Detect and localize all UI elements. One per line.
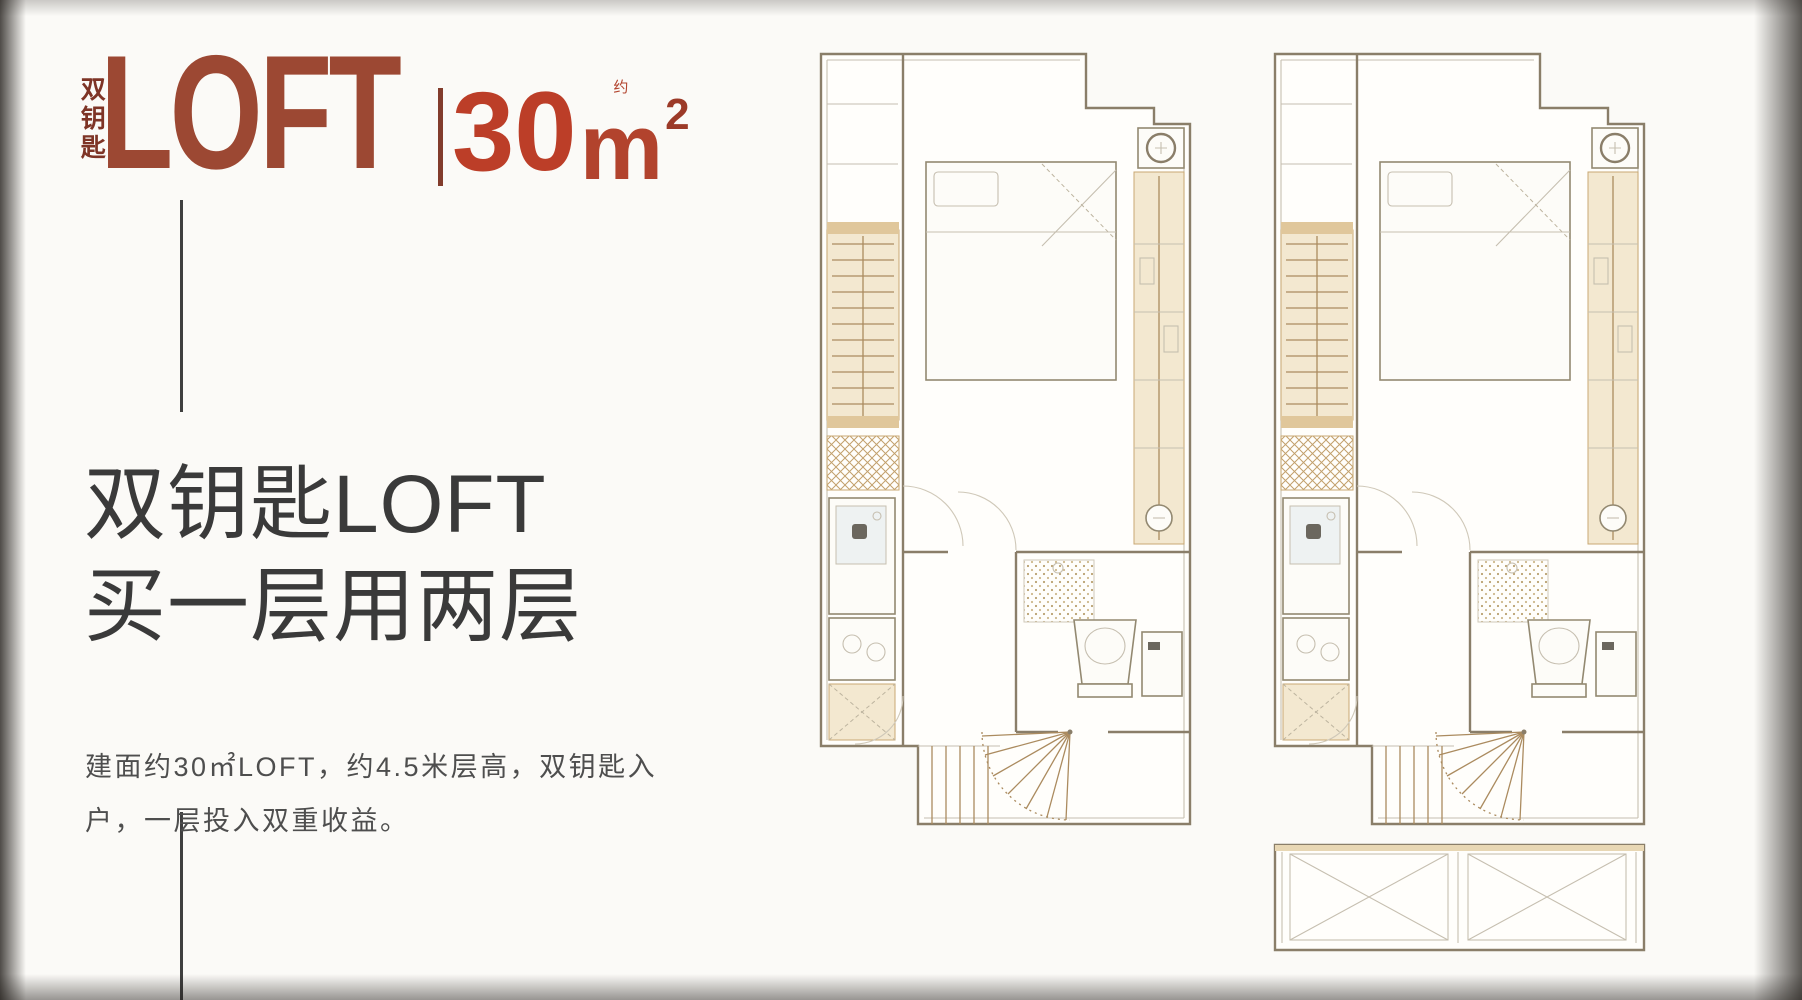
floor-plan-left [818,44,1194,836]
headline-line1: 双钥匙LOFT [84,464,547,546]
floor-plan-right-balcony [1272,842,1648,954]
loft-marketing-page: { "brand": { "vertical_label": "双钥匙", "l… [0,0,1802,1000]
area-unit: 约m [580,108,664,185]
divider-line-bottom [180,812,183,1000]
brand-loft-wordmark: LOFT [100,32,398,194]
area-number: 30 [452,78,577,186]
area-approx-label: 约 [613,82,629,94]
area-superscript: 2 [665,90,689,140]
divider-line-top [180,200,183,412]
headline-line2: 买一层用两层 [84,566,582,648]
logo-divider [438,88,443,186]
floor-plan-right [1272,44,1648,836]
area-badge: 30 约m 2 [452,78,690,186]
description-line1: 建面约30㎡LOFT，约4.5米层高，双钥匙入 [85,754,657,781]
description-line2: 户，一层投入双重收益。 [85,808,410,835]
